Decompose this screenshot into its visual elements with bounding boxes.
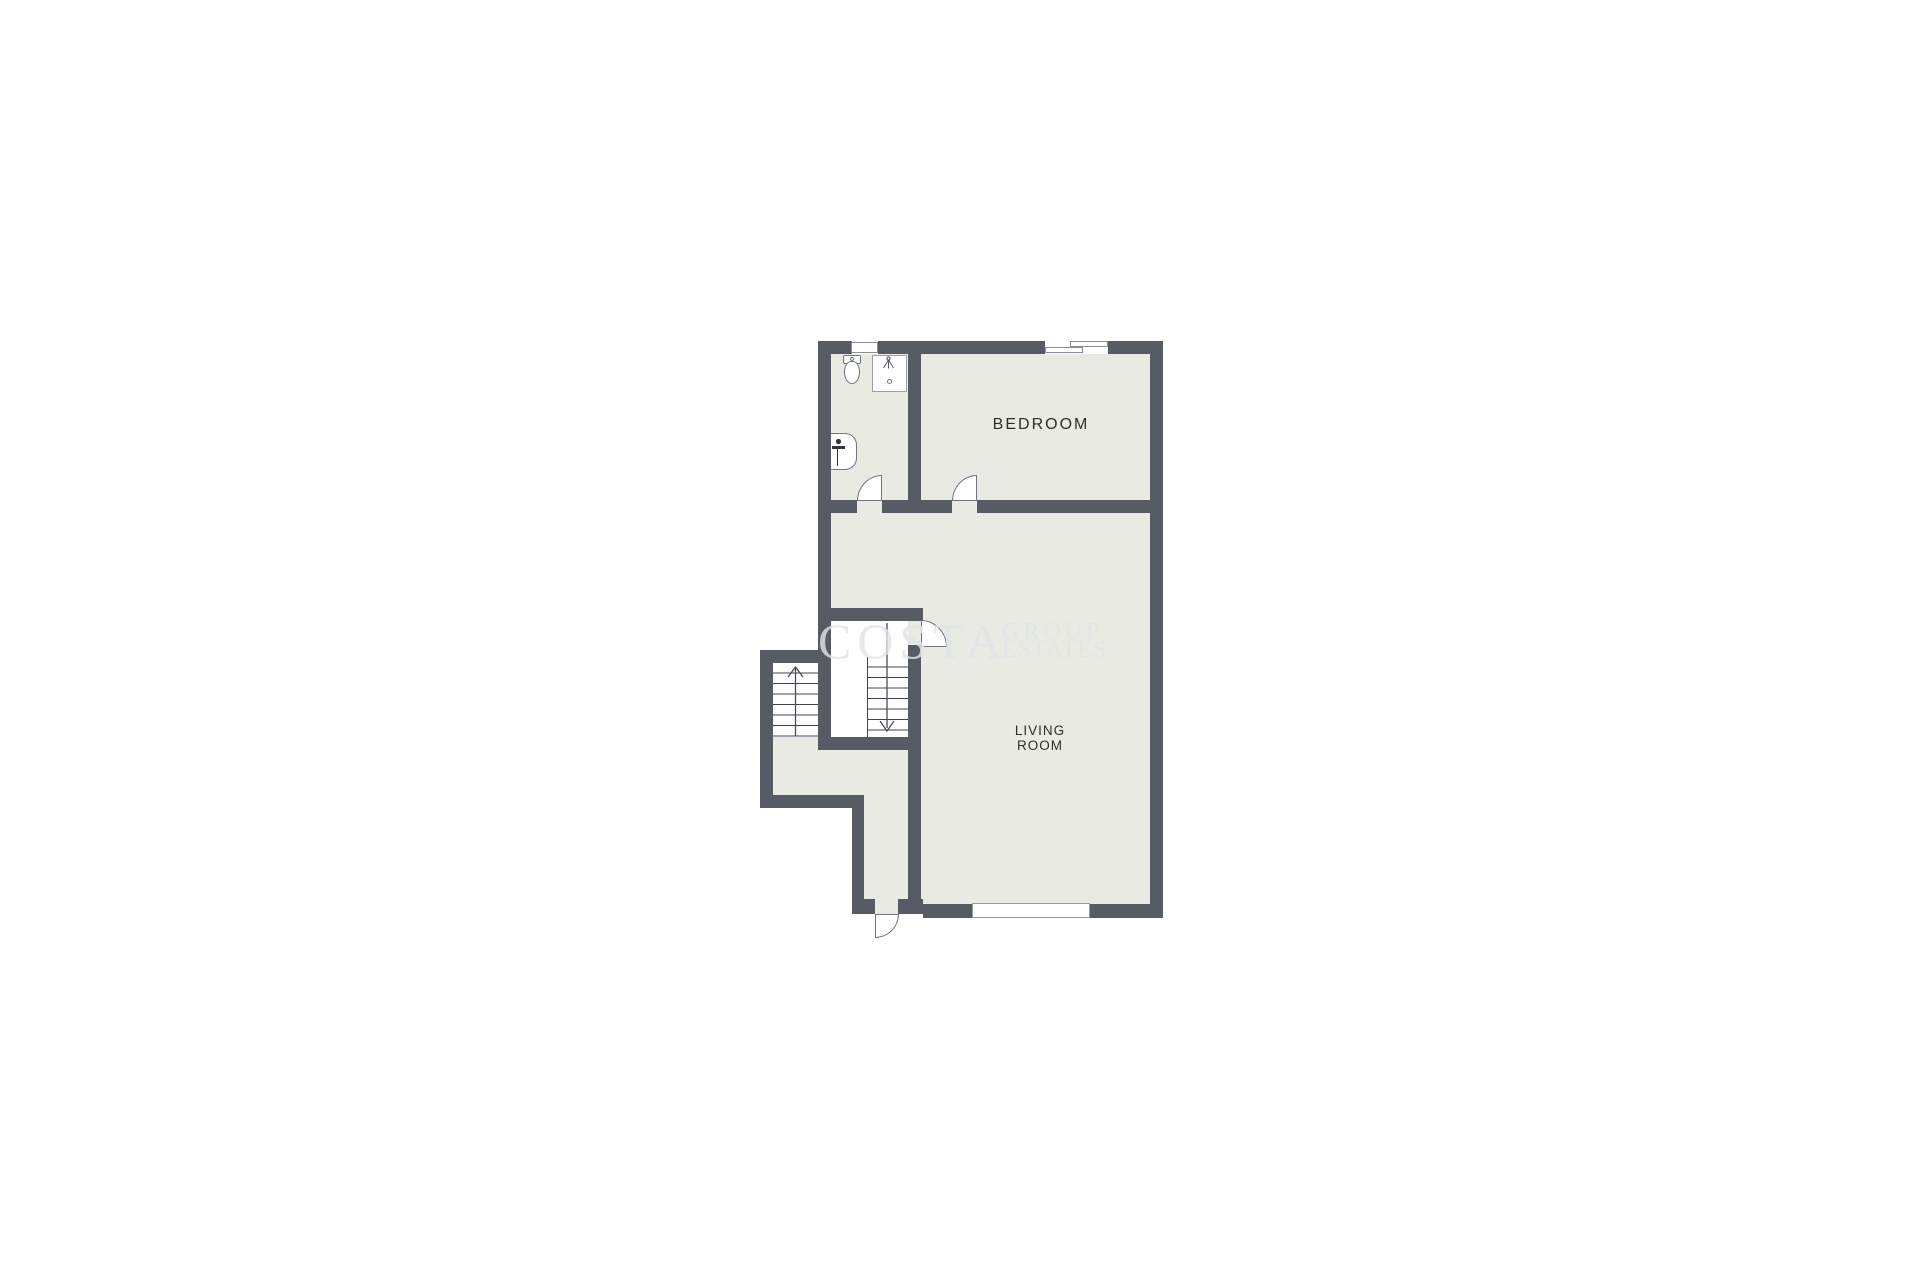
living-room-label-line2: ROOM [1015,738,1065,753]
wall-bumpout-left [760,650,773,808]
toilet-bowl [844,361,860,384]
wall-bottom-segment-right [1090,904,1150,918]
sink-tap-stem [837,449,839,466]
floor-entry-doorway [875,899,898,914]
wall-bumpout-bottom [760,795,864,808]
wall-mid-segment-center [882,500,952,513]
entry-door [875,914,899,938]
wall-bottom-segment-left [923,904,972,918]
living-room-label: LIVING ROOM [1015,723,1065,753]
wall-mid-segment-left [831,500,857,513]
wall-right [1150,341,1163,918]
watermark-estates: ESTATES [1002,637,1107,664]
wall-below-stairs [818,737,910,750]
wall-left-main [818,341,831,750]
wall-top-segment-mid [878,341,1045,354]
wall-entry-left-of-door [852,899,875,914]
wall-entry-right-of-door [898,899,923,914]
living-room-label-line1: LIVING [1015,723,1065,738]
watermark-costa: COSTA [818,612,1008,670]
wall-corridor-left [852,808,864,899]
sink-tap-dot [836,439,841,444]
bedroom-sliding-window-upper [1070,341,1108,347]
bedroom-label: BEDROOM [993,416,1090,434]
wall-stair-right [908,645,921,899]
shower-head-icon [880,356,898,370]
wall-mid-segment-right [977,500,1150,513]
sink-basin [829,433,857,470]
shower-drain [887,379,892,384]
stairs-up-arrow-icon [773,660,818,738]
wall-bathroom-bedroom-divider [908,354,921,500]
floor-main-lower [852,808,1150,904]
living-room-window [972,903,1090,918]
bathroom-window [851,342,878,353]
floor-plan-page: BEDROOM LIVING ROOM COSTA GROUP ESTATES [0,0,1920,1280]
bedroom-sliding-window-lower [1045,347,1083,353]
